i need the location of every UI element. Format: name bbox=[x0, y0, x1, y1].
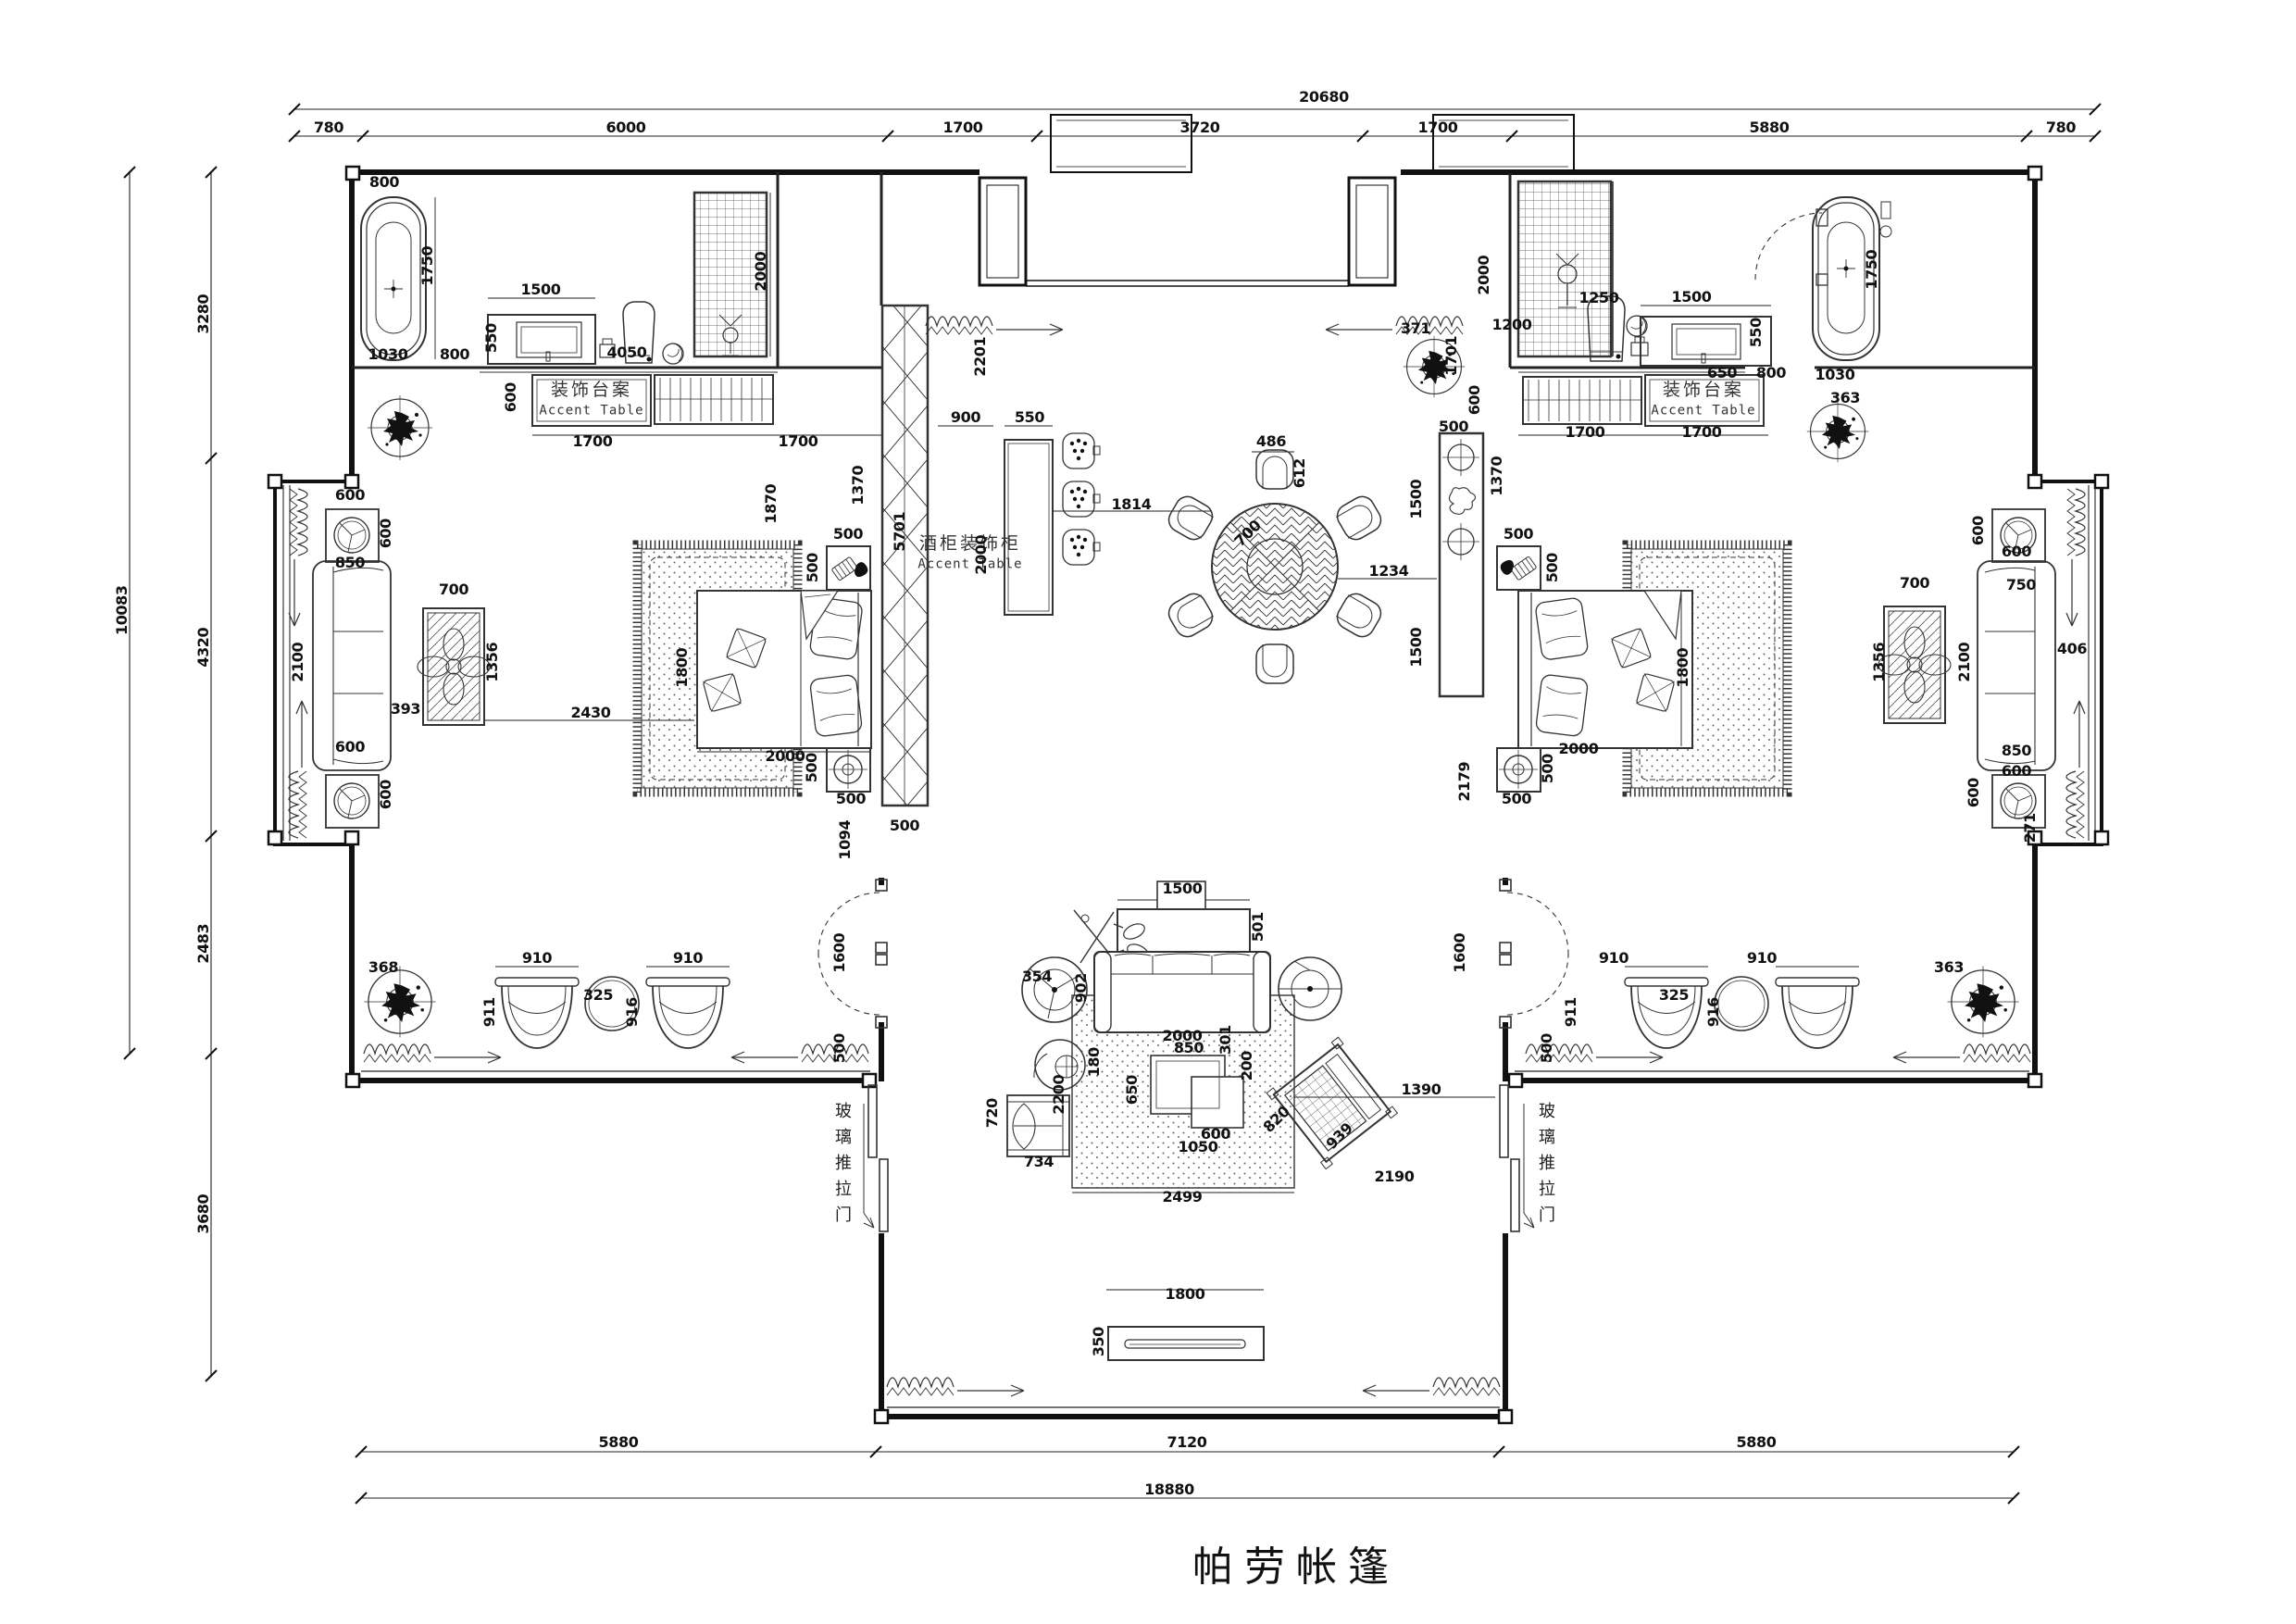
right-lounge-wing bbox=[1625, 967, 2019, 1049]
left-bedroom bbox=[637, 544, 871, 793]
wine-cabinet bbox=[882, 306, 928, 806]
left-lounge-wing bbox=[365, 967, 730, 1049]
left-bathroom bbox=[361, 193, 778, 460]
sliding-door-label-right: 玻璃推拉门 bbox=[1537, 1102, 1554, 1231]
dining-set bbox=[1165, 450, 1385, 683]
left-sitting-bay bbox=[313, 509, 490, 828]
right-bathroom bbox=[1404, 181, 1891, 462]
floorplan-page: 2068078060001700372017005880780100833280… bbox=[0, 0, 2296, 1624]
console-table bbox=[1004, 433, 1100, 615]
floorplan-canvas bbox=[0, 0, 2296, 1624]
entry-curtains bbox=[926, 317, 1463, 335]
entry bbox=[980, 115, 1574, 286]
plan-title: 帕劳帐篷 bbox=[1192, 1547, 1400, 1588]
living-room bbox=[1007, 881, 1397, 1360]
right-bedroom bbox=[1497, 544, 1788, 793]
sliding-door-label-left: 玻璃推拉门 bbox=[833, 1102, 850, 1231]
bar-counter bbox=[1440, 433, 1483, 696]
corner-posts bbox=[268, 167, 2108, 1423]
right-sitting-bay bbox=[1878, 509, 2055, 828]
